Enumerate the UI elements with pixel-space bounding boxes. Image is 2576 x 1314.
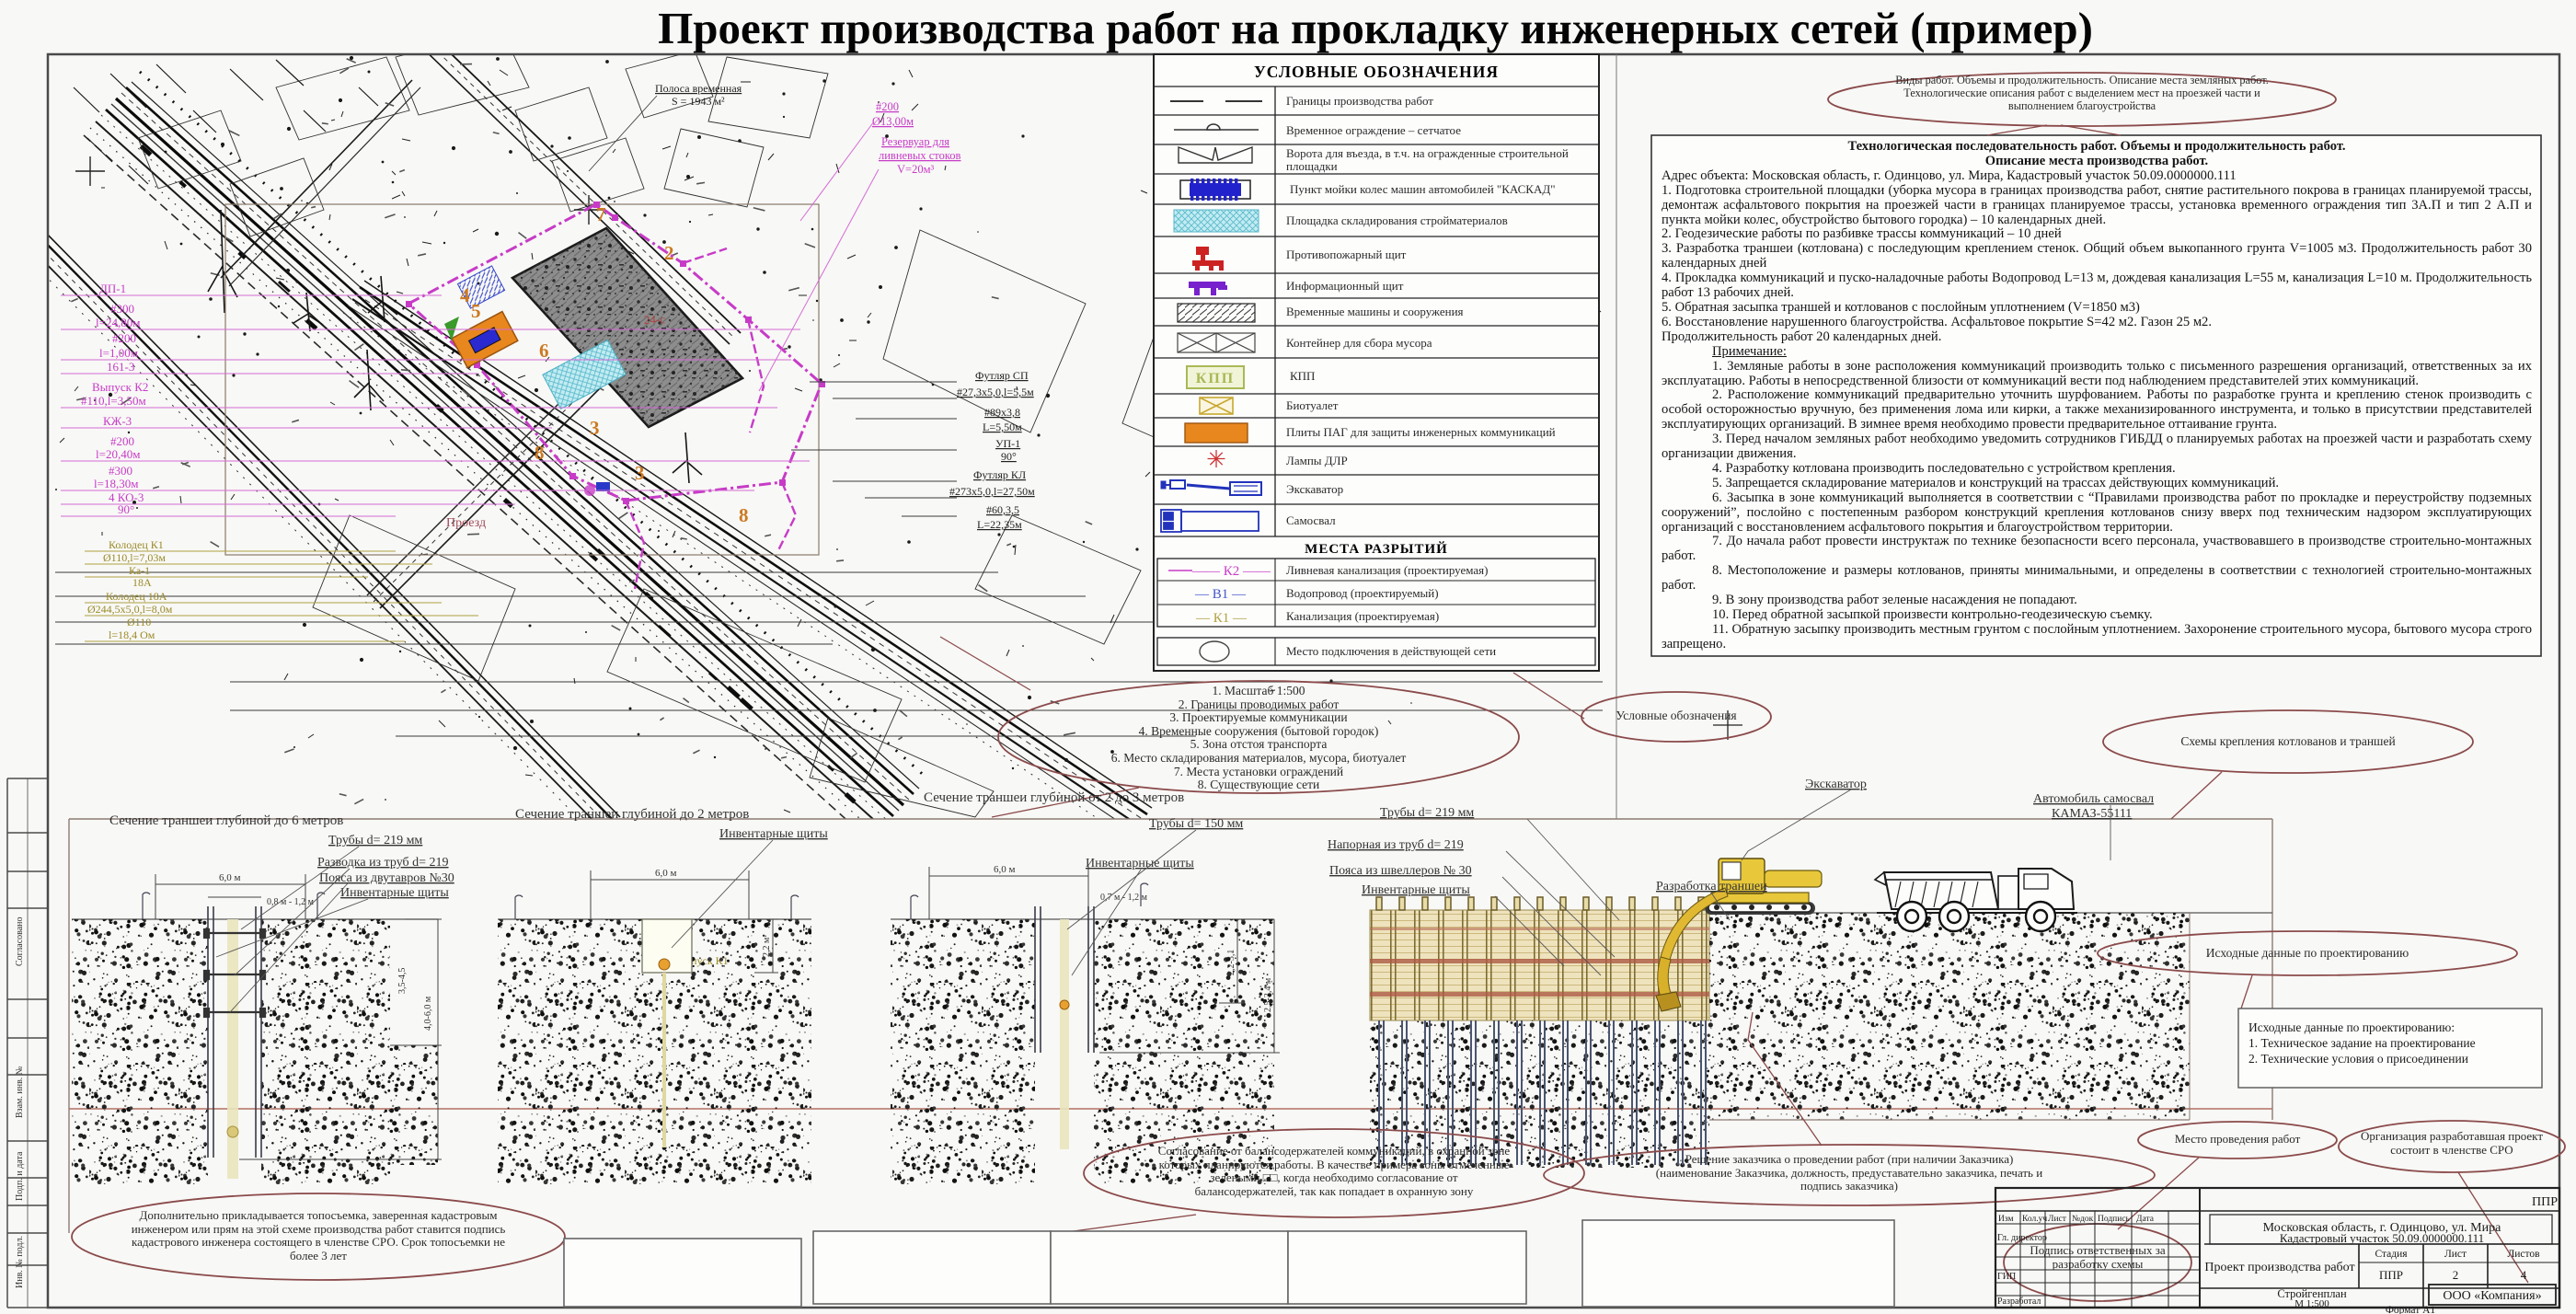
svg-text:Инвентарные щиты: Инвентарные щиты [1362,883,1470,897]
svg-text:Инвентарные щиты: Инвентарные щиты [1086,857,1194,870]
svg-text:90°: 90° [1001,450,1017,463]
svg-text:Автомобиль самосвал: Автомобиль самосвал [2033,792,2154,806]
svg-text:Биотуалет: Биотуалет [1286,398,1339,412]
svg-text:Пояса из швеллеров № 30: Пояса из швеллеров № 30 [1329,864,1472,878]
svg-text:Колодец 18А: Колодец 18А [106,590,167,603]
svg-text:S = 1943 м²: S = 1943 м² [672,95,725,108]
svg-text:L=5,50м: L=5,50м [983,421,1022,433]
svg-text:Проект производства работ: Проект производства работ [2204,1261,2354,1274]
svg-text:L=22,35м: L=22,35м [977,518,1022,531]
svg-text:l=18,30м: l=18,30м [94,477,138,490]
svg-text:Подпись: Подпись [2098,1215,2131,1224]
svg-text:Информационный щит: Информационный щит [1286,279,1404,293]
svg-text:Выпуск К2: Выпуск К2 [92,380,148,394]
svg-text:Временное ограждение – сетчато: Временное ограждение – сетчатое [1286,123,1461,137]
svg-text:Трубы d= 150 мм: Трубы d= 150 мм [1149,817,1243,831]
svg-text:Разводка из труб d= 219: Разводка из труб d= 219 [317,856,449,870]
svg-text:КАМАЗ-55111: КАМАЗ-55111 [2052,807,2132,821]
svg-text:Стадия: Стадия [2375,1249,2408,1260]
svg-text:— В1 —: — В1 — [1194,587,1247,602]
svg-text:2: 2 [2453,1268,2459,1282]
svg-text:Кол.уч: Кол.уч [2022,1215,2047,1224]
svg-text:площадки: площадки [1286,159,1338,173]
svg-text:Экскаватор: Экскаватор [1805,778,1867,791]
svg-text:Подп. и дата: Подп. и дата [15,1151,25,1201]
svg-text:М 1:500: М 1:500 [2294,1298,2329,1309]
svg-text:№док: №док [2072,1215,2094,1224]
svg-text:Взам. инв. №: Взам. инв. № [15,1066,25,1118]
svg-text:Лист: Лист [2048,1215,2067,1224]
svg-text:Противопожарный щит: Противопожарный щит [1286,248,1407,261]
svg-text:УП-1: УП-1 [995,437,1020,450]
svg-text:Колодец К1: Колодец К1 [109,538,164,551]
svg-text:Гл. директор: Гл. директор [1997,1233,2047,1243]
svg-text:ООО «Компания»: ООО «Компания» [2443,1289,2541,1303]
svg-text:Листов: Листов [2507,1249,2540,1260]
svg-text:2,2 м: 2,2 м [762,937,772,957]
svg-text:Разработка траншеи: Разработка траншеи [1656,880,1767,893]
svg-text:#60,3,5: #60,3,5 [986,503,1019,516]
svg-text:161-3: 161-3 [107,360,134,374]
svg-text:V=20м³: V=20м³ [897,163,934,176]
svg-text:4,0-6,0 м: 4,0-6,0 м [423,996,433,1031]
svg-text:Границы производства работ: Границы производства работ [1286,94,1433,108]
svg-text:Ливневая канализация (проектир: Ливневая канализация (проектируемая) [1286,563,1488,577]
svg-text:#200: #200 [876,100,899,113]
svg-text:Ø110,l=7,03м: Ø110,l=7,03м [103,551,166,564]
svg-text:6,0 м: 6,0 м [219,872,241,883]
svg-text:Временные машины и сооружения: Временные машины и сооружения [1286,305,1464,318]
svg-text:Инвентарные щиты: Инвентарные щиты [719,827,828,841]
svg-text:Ø244,5x5,0,l=8,0м: Ø244,5x5,0,l=8,0м [87,603,173,616]
svg-text:✳: ✳ [1206,446,1226,473]
svg-text:Ворота для въезда, в т.ч. на о: Ворота для въезда, в т.ч. на огражденные… [1286,146,1569,160]
svg-text:Полоса временная: Полоса временная [655,82,742,95]
svg-text:6,0 м: 6,0 м [994,864,1016,875]
svg-text:ливневых стоков: ливневых стоков [879,149,961,162]
svg-text:Площадка складирования стройма: Площадка складирования стройматериалов [1286,213,1508,227]
svg-text:Экскаватор: Экскаватор [1286,482,1343,496]
svg-text:КПП: КПП [1290,369,1315,383]
svg-text:Ø110: Ø110 [127,616,151,628]
svg-text:Изм: Изм [1998,1215,2014,1224]
svg-text:Инв. № подл.: Инв. № подл. [15,1236,25,1288]
svg-text:МЕСТА РАЗРЫТИЙ: МЕСТА РАЗРЫТИЙ [1305,541,1448,557]
svg-text:#89x3,8: #89x3,8 [984,406,1020,419]
svg-text:l=20,40м: l=20,40м [96,447,140,461]
svg-text:Футляр СП: Футляр СП [975,369,1029,382]
svg-text:Трубы d= 219 мм: Трубы d= 219 мм [328,834,422,847]
svg-text:l=1,00м: l=1,00м [99,346,138,360]
svg-text:Кадастровый участок 50.09.0000: Кадастровый участок 50.09.0000000.111 [2280,1231,2484,1245]
svg-text:Пункт мойки колес машин автомо: Пункт мойки колес машин автомобилей "КАС… [1290,182,1556,196]
svg-text:#300: #300 [109,464,132,478]
svg-text:#200: #200 [110,434,134,448]
svg-text:Плиты ПАГ для защиты инженерны: Плиты ПАГ для защиты инженерных коммуник… [1286,425,1556,439]
svg-text:Футляр КЛ: Футляр КЛ [973,468,1026,481]
svg-text:#200: #200 [112,331,136,345]
svg-text:#110,l=3,50м: #110,l=3,50м [81,394,146,408]
svg-text:— К1 —: — К1 — [1195,611,1248,626]
svg-text:3,5-4,5: 3,5-4,5 [397,968,408,994]
svg-text:ДП-1: ДП-1 [99,282,126,295]
svg-text:Формат А1: Формат А1 [2386,1305,2436,1314]
svg-text:l=18,4 Ом: l=18,4 Ом [109,628,155,641]
svg-text:Дата: Дата [2136,1215,2155,1224]
svg-text:Место подключения в действующе: Место подключения в действующей сети [1286,644,1496,658]
svg-text:Инвентарные щиты: Инвентарные щиты [340,886,449,900]
svg-text:Резервуар для: Резервуар для [881,135,949,148]
svg-text:18А: 18А [132,576,152,589]
svg-text:КПП: КПП [1196,371,1236,386]
svg-text:Ø13,00м: Ø13,00м [872,115,914,128]
svg-text:Проезд: Проезд [446,516,486,530]
svg-text:КЖ-3: КЖ-3 [103,414,132,428]
svg-text:ППР: ППР [2379,1268,2403,1282]
svg-text:Напорная из труб d= 219: Напорная из труб d= 219 [1328,838,1464,852]
svg-text:ППР: ППР [2532,1195,2558,1209]
svg-text:Трубы d= 219 мм: Трубы d= 219 мм [1380,806,1474,820]
svg-text:#300: #300 [110,302,134,316]
svg-text:ГИП: ГИП [1997,1272,2016,1282]
svg-text:Разработал: Разработал [1997,1297,2041,1307]
svg-text:#27,3x5,0,l=5,5м: #27,3x5,0,l=5,5м [957,386,1034,398]
svg-text:Контейнер для сбора мусора: Контейнер для сбора мусора [1286,336,1432,350]
svg-text:Ка-1: Ка-1 [129,564,150,577]
svg-text:2,2-3,1: 2,2-3,1 [1226,950,1236,975]
svg-text:Лист: Лист [2444,1249,2467,1260]
svg-text:Самосвал: Самосвал [1286,513,1336,527]
svg-text:Водопровод (проектируемый): Водопровод (проектируемый) [1286,586,1439,600]
svg-text:4: 4 [2521,1268,2527,1282]
svg-text:УСЛОВНЫЕ ОБОЗНАЧЕНИЯ: УСЛОВНЫЕ ОБОЗНАЧЕНИЯ [1254,63,1499,81]
svg-text:Канализация (проектируемая): Канализация (проектируемая) [1286,609,1439,623]
svg-text:6,0 м: 6,0 м [655,868,677,879]
svg-text:Согласовано: Согласовано [15,916,25,966]
svg-text:l=24,80м: l=24,80м [96,316,140,329]
svg-text:2,5-3,4 м: 2,5-3,4 м [1263,977,1273,1012]
svg-text:—— К2 ——: —— К2 —— [1191,564,1271,579]
svg-text:Лампы ДЛР: Лампы ДЛР [1286,454,1348,467]
svg-text:#273x5,0,l=27,50м: #273x5,0,l=27,50м [949,485,1035,498]
